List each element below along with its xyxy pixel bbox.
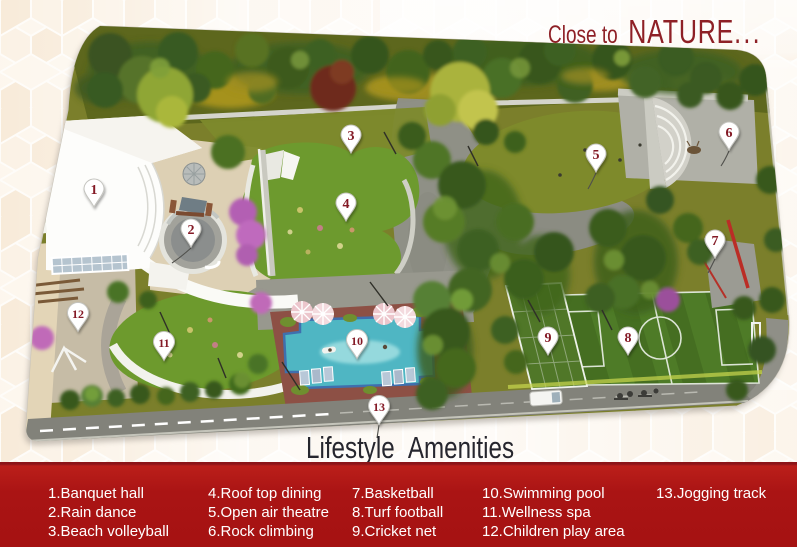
svg-text:13: 13 bbox=[373, 400, 385, 414]
svg-text:8: 8 bbox=[625, 331, 632, 346]
svg-text:10: 10 bbox=[351, 334, 363, 348]
svg-text:4: 4 bbox=[343, 197, 350, 212]
svg-text:11: 11 bbox=[158, 336, 169, 350]
svg-text:7: 7 bbox=[712, 234, 719, 249]
svg-text:1: 1 bbox=[91, 183, 98, 198]
svg-text:5: 5 bbox=[593, 148, 600, 163]
svg-text:12: 12 bbox=[72, 307, 84, 321]
svg-text:9: 9 bbox=[545, 331, 552, 346]
svg-text:3: 3 bbox=[348, 129, 355, 144]
svg-text:6: 6 bbox=[726, 126, 733, 141]
svg-text:2: 2 bbox=[188, 223, 195, 238]
